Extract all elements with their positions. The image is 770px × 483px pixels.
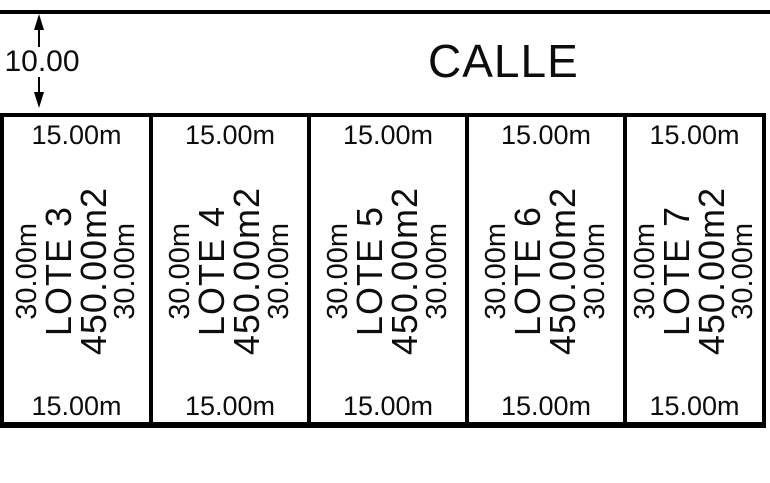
lot-name: LOTE 6 bbox=[514, 206, 543, 336]
lot-front-dimension: 15.00m bbox=[501, 122, 591, 149]
lot-side-dimension-right: 30.00m bbox=[732, 223, 755, 320]
street-width-dimension-value: 10.00 bbox=[0, 47, 84, 77]
lot-parcel: 15.00m 30.00m LOTE 6 450.00m2 30.00m 15.… bbox=[469, 117, 627, 422]
lot-rear-dimension: 15.00m bbox=[185, 393, 275, 420]
lot-front-dimension: 15.00m bbox=[185, 122, 275, 149]
lot-middle-labels: 30.00m LOTE 3 450.00m2 30.00m bbox=[16, 187, 138, 355]
lot-middle-labels: 30.00m LOTE 4 450.00m2 30.00m bbox=[169, 187, 291, 355]
lot-side-dimension-right: 30.00m bbox=[114, 223, 137, 320]
lot-middle-labels: 30.00m LOTE 6 450.00m2 30.00m bbox=[485, 187, 607, 355]
street-top-boundary-line bbox=[0, 10, 770, 14]
lot-area: 450.00m2 bbox=[80, 187, 109, 355]
lot-name: LOTE 3 bbox=[45, 206, 74, 336]
lot-front-dimension: 15.00m bbox=[31, 122, 121, 149]
subdivision-plan: CALLE 10.00 15.00m 30.00m LOTE 3 450.00m… bbox=[0, 0, 770, 483]
lot-side-dimension-left: 30.00m bbox=[169, 223, 192, 320]
lot-name: LOTE 5 bbox=[356, 206, 385, 336]
lot-parcel: 15.00m 30.00m LOTE 7 450.00m2 30.00m 15.… bbox=[627, 117, 762, 422]
lot-side-dimension-left: 30.00m bbox=[327, 223, 350, 320]
lot-side-dimension-right: 30.00m bbox=[268, 223, 291, 320]
lot-parcel: 15.00m 30.00m LOTE 3 450.00m2 30.00m 15.… bbox=[4, 117, 153, 422]
lots-row: 15.00m 30.00m LOTE 3 450.00m2 30.00m 15.… bbox=[0, 113, 766, 428]
lot-name: LOTE 7 bbox=[663, 206, 692, 336]
lot-side-dimension-left: 30.00m bbox=[634, 223, 657, 320]
lot-rear-dimension: 15.00m bbox=[31, 393, 121, 420]
lot-parcel: 15.00m 30.00m LOTE 5 450.00m2 30.00m 15.… bbox=[311, 117, 469, 422]
lot-rear-dimension: 15.00m bbox=[343, 393, 433, 420]
street-width-dimension-line bbox=[38, 18, 40, 47]
lot-area: 450.00m2 bbox=[698, 187, 727, 355]
lot-middle-labels: 30.00m LOTE 5 450.00m2 30.00m bbox=[327, 187, 449, 355]
lot-rear-dimension: 15.00m bbox=[501, 393, 591, 420]
lot-middle-labels: 30.00m LOTE 7 450.00m2 30.00m bbox=[634, 187, 756, 355]
lot-front-dimension: 15.00m bbox=[649, 122, 739, 149]
street-label: CALLE bbox=[428, 38, 579, 84]
dimension-arrow-down-icon bbox=[34, 92, 44, 108]
lot-area: 450.00m2 bbox=[233, 187, 262, 355]
lot-side-dimension-left: 30.00m bbox=[16, 223, 39, 320]
lot-name: LOTE 4 bbox=[198, 206, 227, 336]
lot-side-dimension-left: 30.00m bbox=[485, 223, 508, 320]
lot-side-dimension-right: 30.00m bbox=[584, 223, 607, 320]
lot-parcel: 15.00m 30.00m LOTE 4 450.00m2 30.00m 15.… bbox=[153, 117, 311, 422]
lot-rear-dimension: 15.00m bbox=[649, 393, 739, 420]
lot-area: 450.00m2 bbox=[549, 187, 578, 355]
lot-area: 450.00m2 bbox=[391, 187, 420, 355]
lot-side-dimension-right: 30.00m bbox=[426, 223, 449, 320]
lot-front-dimension: 15.00m bbox=[343, 122, 433, 149]
